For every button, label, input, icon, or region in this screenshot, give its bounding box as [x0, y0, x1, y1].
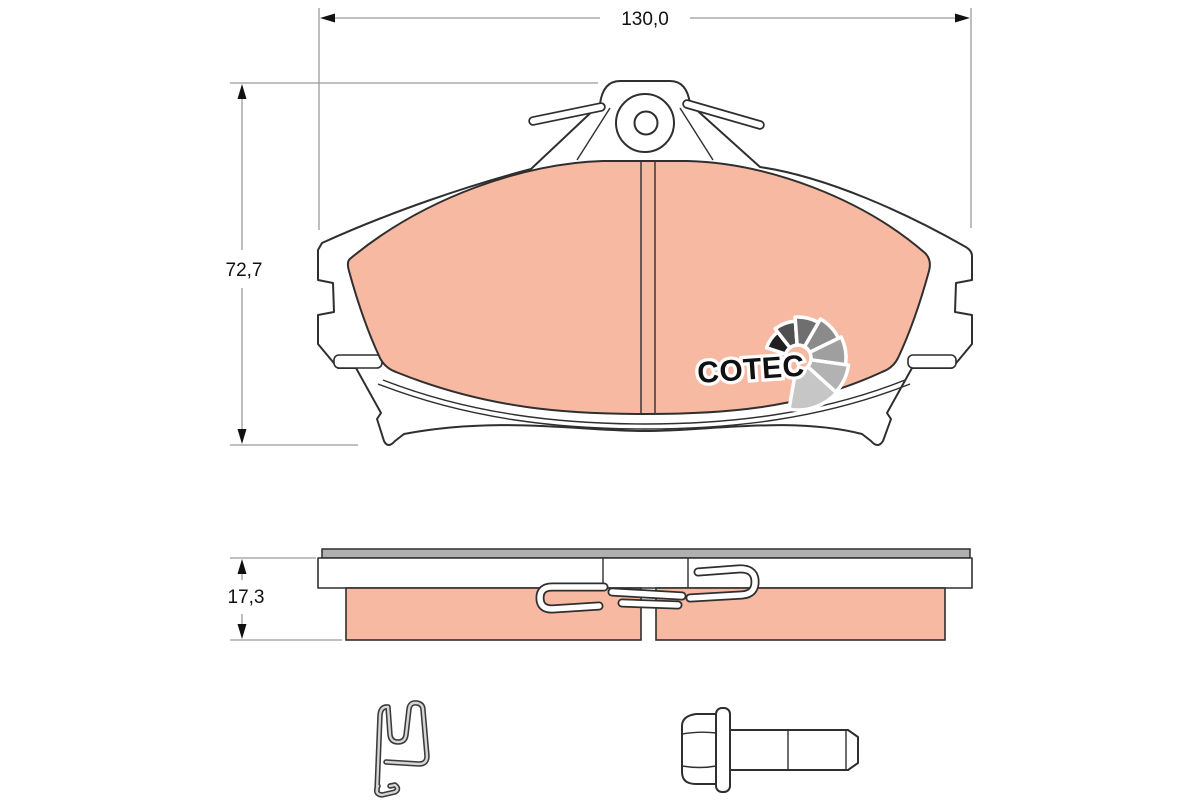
thickness-arrow-down-icon: [238, 624, 247, 639]
backing-plate-edge: [318, 558, 972, 588]
brake-pad-technical-drawing: 130,0 72,7: [0, 0, 1200, 800]
width-arrow-left-icon: [320, 14, 335, 23]
abutment-lug-right: [908, 355, 956, 368]
accessory-bolt: [682, 708, 858, 792]
height-arrow-up-icon: [238, 84, 247, 99]
width-dimension-label: 130,0: [621, 9, 669, 30]
height-arrow-down-icon: [238, 429, 247, 444]
accessory-spring-clip: [377, 703, 427, 795]
width-arrow-right-icon: [955, 14, 970, 23]
abutment-lug-left: [334, 355, 382, 368]
bolt-flange: [716, 708, 730, 792]
bolt-hex-head: [682, 714, 716, 784]
thickness-dimension-label: 17,3: [228, 587, 265, 608]
brake-pad-side-view: [318, 549, 972, 640]
shim-strip: [322, 549, 970, 558]
brake-pad-front-view: COTEC: [318, 81, 972, 445]
height-dimension-label: 72,7: [226, 260, 263, 281]
technical-drawing-canvas: 130,0 72,7: [0, 0, 1200, 800]
thickness-arrow-up-icon: [238, 559, 247, 574]
bolt-shank: [730, 730, 858, 770]
guide-hole: [635, 112, 658, 135]
friction-edge-left-block: [346, 588, 641, 640]
